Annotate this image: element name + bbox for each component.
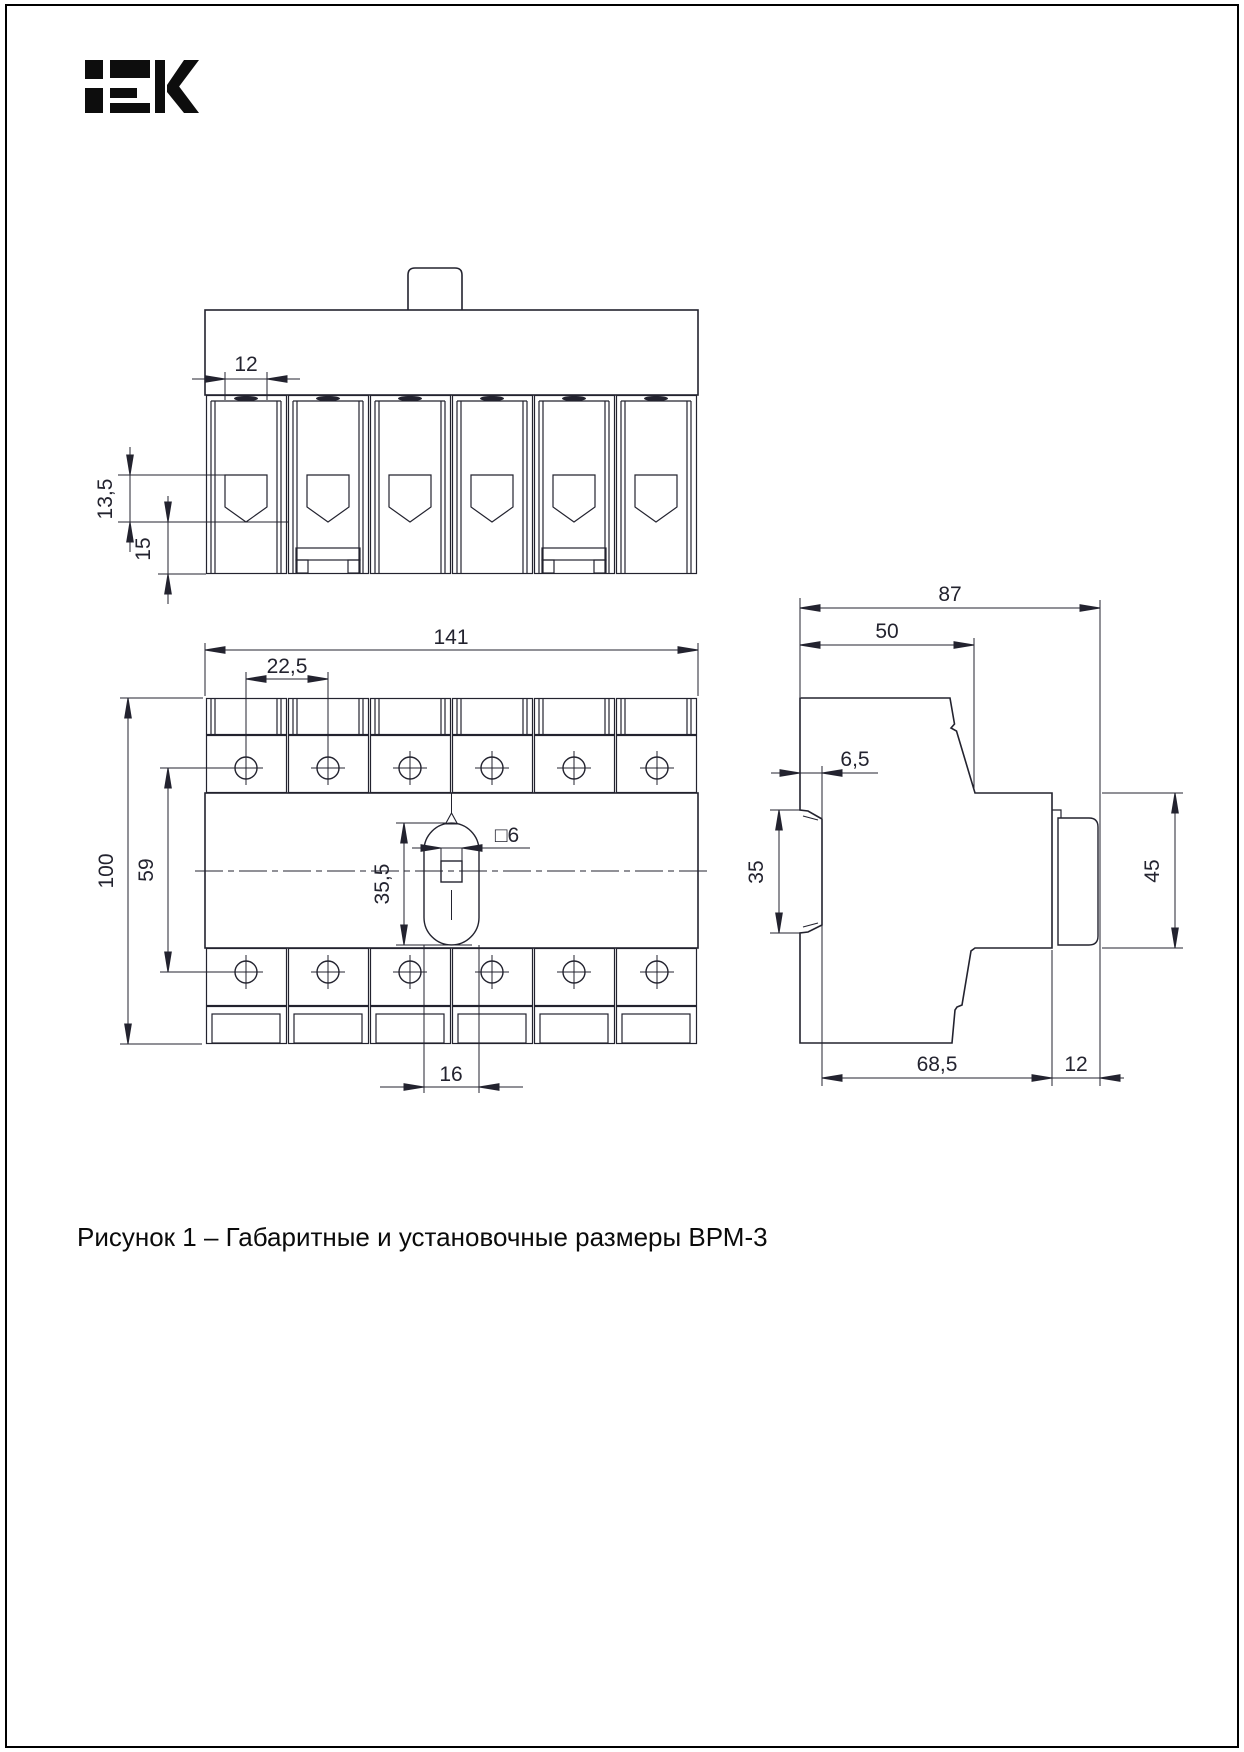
side-view-dimensions: 87 50 6,5 35 45 68,5 12 [745, 583, 1183, 1086]
dim-front-59: 59 [135, 858, 158, 881]
dim-side-68-5: 68,5 [917, 1053, 958, 1076]
drawing-page: 12 13,5 15 [0, 0, 1244, 1752]
dim-top-13-5: 13,5 [94, 479, 117, 520]
figure-caption: Рисунок 1 – Габаритные и установочные ра… [77, 1222, 768, 1253]
dim-side-35: 35 [745, 860, 768, 883]
top-view-dimensions: 12 13,5 15 [94, 353, 300, 604]
dim-side-45: 45 [1141, 859, 1164, 882]
top-view-tab [408, 268, 462, 310]
dim-side-87: 87 [938, 583, 961, 606]
dim-front-16: 16 [439, 1063, 462, 1086]
side-view-terminal [1058, 818, 1098, 945]
dim-top-15: 15 [132, 537, 155, 560]
dim-side-6-5: 6,5 [840, 748, 869, 771]
dim-front-35-5: 35,5 [371, 864, 394, 905]
dim-front-square-6: □6 [495, 824, 519, 847]
dim-front-22-5: 22,5 [267, 655, 308, 678]
iek-logo-icon [85, 60, 199, 113]
top-view-body [205, 310, 698, 395]
handle-slot [424, 793, 479, 945]
side-view-outline [800, 698, 1052, 1043]
top-view [205, 268, 698, 574]
dim-front-100: 100 [95, 853, 118, 888]
front-view [195, 699, 707, 1044]
dim-top-12: 12 [234, 353, 257, 376]
technical-drawing: 12 13,5 15 [0, 0, 1244, 1752]
dim-front-141: 141 [433, 626, 468, 649]
dim-side-12: 12 [1064, 1053, 1087, 1076]
dim-side-50: 50 [875, 620, 898, 643]
